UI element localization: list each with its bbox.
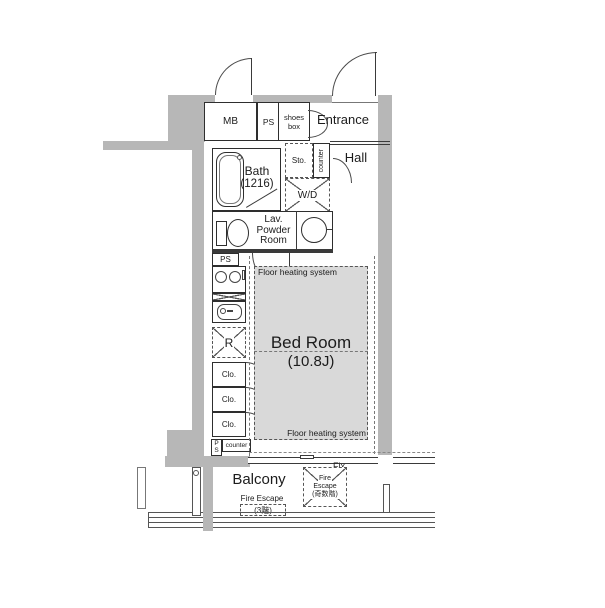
lav-text-1: Lav. (264, 215, 282, 226)
mb-room: MB (204, 102, 257, 141)
stove-burner-left-icon (215, 271, 227, 283)
hall-text: Hall (345, 151, 367, 165)
fire-escape-hatch: Fire Escape (奇数階) (303, 467, 347, 507)
washer-dryer-label: W/D (297, 190, 318, 201)
entrance-text: Entrance (317, 113, 369, 127)
floor-heating-label-top: Floor heating system (258, 268, 337, 277)
closet-3: Clo. (212, 412, 246, 437)
closet-2: Clo. (212, 387, 246, 412)
floor-heating-label-bottom: Floor heating system (256, 429, 366, 438)
fire-hatch-text-3: (奇数階) (311, 491, 339, 499)
ps-mid-label: PS (220, 255, 231, 264)
wall-balcony-band (203, 467, 213, 531)
entrance-label: Entrance (310, 108, 376, 132)
floor-heating-text-bottom: Floor heating system (287, 428, 366, 438)
entrance-door-arc (332, 52, 377, 96)
closet-1-label: Clo. (222, 370, 236, 379)
refrigerator-label: R (224, 336, 235, 350)
wall-left (192, 150, 204, 458)
entrance-door-opening (332, 95, 378, 103)
hall-counter: counter (313, 143, 330, 178)
balcony-railing-line-4 (148, 527, 435, 528)
drain-pipe-icon (193, 470, 199, 476)
hall-counter-label: counter (318, 149, 325, 172)
bath-text-1: Bath (245, 165, 270, 178)
wall-left-corner (167, 430, 204, 458)
balcony-railing-line-2 (148, 517, 435, 518)
wall-right (378, 95, 392, 455)
mb-label: MB (223, 116, 238, 127)
closet-1: Clo. (212, 362, 246, 387)
wall-left-protrusion (103, 141, 204, 150)
fire-hatch-text-1: Fire (318, 475, 332, 483)
balcony-railing-line-3 (148, 522, 435, 523)
balcony-partition-right (383, 484, 390, 513)
balcony-label: Balcony (220, 470, 298, 490)
fixed-window-right (393, 457, 435, 464)
toilet-bowl-icon (227, 219, 249, 247)
mb-door-leaf (251, 58, 252, 95)
toilet-tank-icon (216, 221, 227, 246)
ps-top-label: PS (263, 117, 274, 127)
shoes-box-label-2: box (288, 122, 300, 131)
floor-plan: MB PS shoes box Entrance Hall Sto. count… (0, 0, 605, 608)
powder-sink-faucet-icon (326, 229, 332, 230)
closet-3-label: Clo. (222, 420, 236, 429)
mb-door-arc (215, 58, 252, 95)
balcony-text: Balcony (232, 472, 285, 488)
ps-mid-box: PS (212, 253, 239, 266)
wall-bottom-strip (165, 456, 250, 467)
powder-sink-icon (301, 217, 327, 243)
window-sash-mark (300, 455, 314, 459)
shoes-box: shoes box (278, 102, 310, 141)
lav-text-3: Room (260, 236, 287, 247)
refrigerator-space: R (212, 327, 246, 358)
stove-burner-right-icon (229, 271, 241, 283)
stove-grill-icon (242, 270, 245, 280)
ps-bottom-box: P S (211, 439, 222, 456)
entrance-door-leaf (375, 52, 376, 96)
neighbor-partition (137, 467, 146, 509)
lavatory-label: Lav. Powder Room (250, 212, 297, 250)
storage-label: Sto. (292, 156, 306, 165)
shoes-box-label-1: shoes (284, 113, 304, 122)
fire-escape-3f-box: (3階) (240, 504, 286, 516)
bedroom-size-label: (10.8J) (252, 354, 370, 370)
fire-escape-3f-label: Fire Escape (226, 494, 298, 504)
bedroom-name-label: Bed Room (252, 334, 370, 352)
fire-escape-3f-text-1: Fire Escape (241, 495, 284, 504)
bedroom-left-dashed-line (249, 256, 250, 456)
closet-2-label: Clo. (222, 395, 236, 404)
fire-hatch-text-2: Escape (312, 483, 337, 491)
entrance-step-line (330, 141, 390, 145)
counter-bottom-box: counter (222, 439, 251, 452)
bedroom-right-dashed-line (374, 256, 375, 454)
bedroom-size-text: (10.8J) (288, 354, 335, 370)
fire-escape-3f-text-2: (3階) (254, 505, 272, 516)
counter-bottom-label: counter (226, 442, 248, 449)
storage-room: Sto. (285, 143, 313, 178)
kitchen-faucet-icon (220, 308, 226, 314)
floor-heating-text-top: Floor heating system (258, 267, 337, 277)
bedroom-name-text: Bed Room (271, 334, 351, 352)
ps-top-room: PS (257, 102, 280, 141)
washer-dryer-space: W/D (285, 178, 330, 212)
balcony-railing-left-end (148, 512, 149, 528)
bath-text-2: (1216) (240, 178, 273, 190)
ps-bottom-label-2: S (214, 448, 218, 455)
kitchen-faucet-stem-icon (227, 310, 233, 312)
window-dashed-line (249, 452, 435, 453)
kitchen-counter-hatch (212, 293, 246, 301)
